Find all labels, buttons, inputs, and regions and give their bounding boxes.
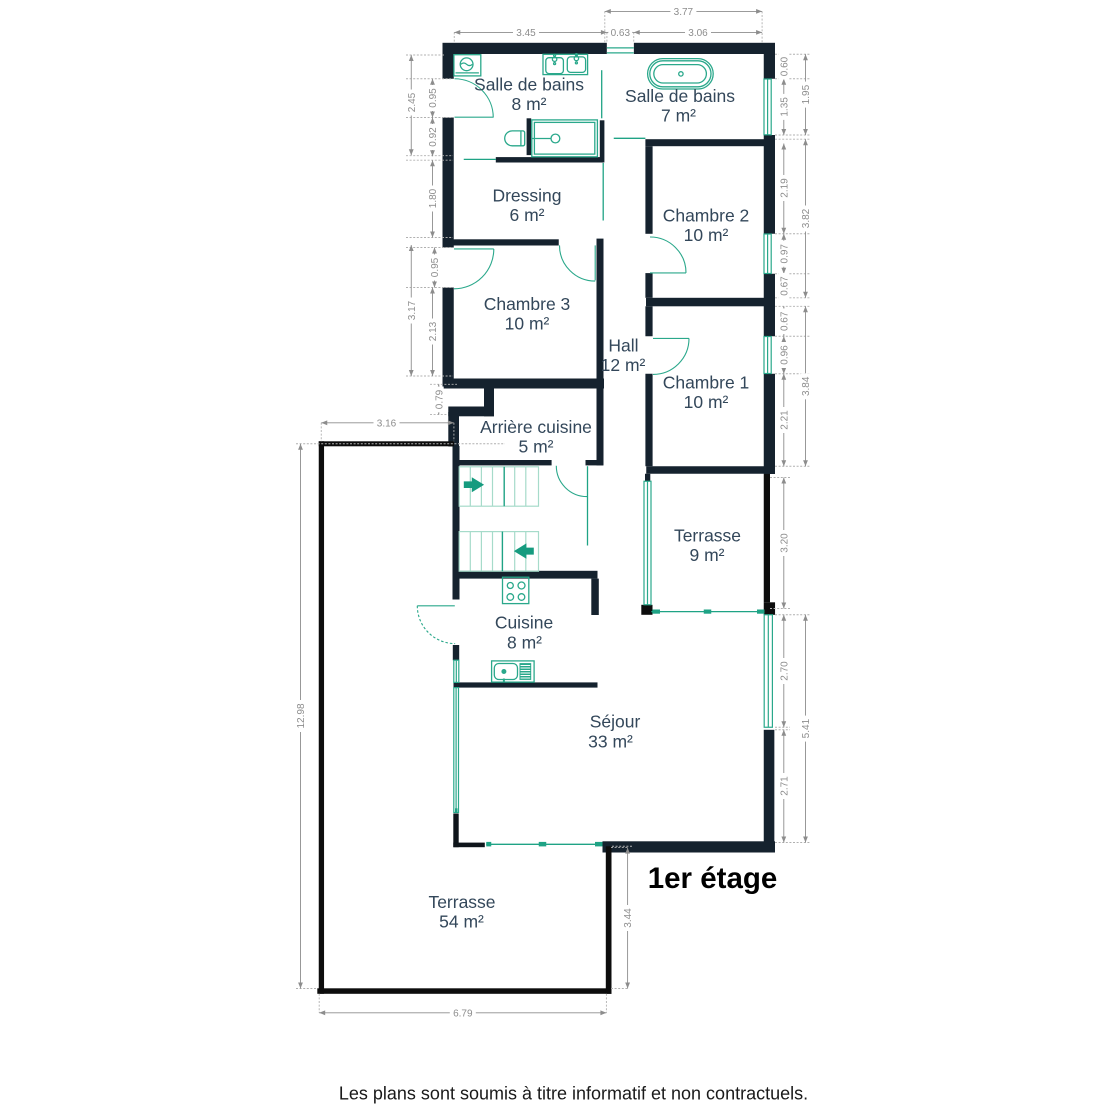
svg-text:2.45: 2.45: [407, 92, 418, 112]
svg-text:3.17: 3.17: [407, 300, 418, 320]
svg-text:0.92: 0.92: [428, 127, 439, 147]
svg-text:10 m²: 10 m²: [505, 314, 550, 334]
svg-text:0.60: 0.60: [779, 56, 790, 76]
svg-text:3.06: 3.06: [688, 28, 708, 39]
svg-text:8 m²: 8 m²: [507, 633, 542, 653]
svg-text:Salle de bains: Salle de bains: [625, 86, 735, 106]
svg-text:3.20: 3.20: [779, 533, 790, 553]
svg-text:33 m²: 33 m²: [588, 732, 633, 752]
svg-text:1.95: 1.95: [801, 84, 812, 104]
svg-text:5.41: 5.41: [801, 718, 812, 738]
svg-text:Cuisine: Cuisine: [495, 613, 553, 633]
svg-text:Arrière cuisine: Arrière cuisine: [480, 417, 592, 437]
svg-text:Terrasse: Terrasse: [428, 892, 495, 912]
svg-text:3.77: 3.77: [674, 7, 694, 18]
svg-text:1er étage: 1er étage: [648, 862, 778, 895]
svg-text:1.35: 1.35: [779, 97, 790, 117]
svg-text:Chambre 1: Chambre 1: [663, 373, 750, 393]
svg-text:0.96: 0.96: [779, 345, 790, 365]
svg-text:2.70: 2.70: [779, 661, 790, 681]
svg-text:Terrasse: Terrasse: [674, 526, 741, 546]
svg-text:3.44: 3.44: [623, 908, 634, 928]
svg-text:0.95: 0.95: [428, 88, 439, 108]
svg-text:2.21: 2.21: [779, 410, 790, 430]
svg-text:0.67: 0.67: [779, 311, 790, 331]
svg-text:3.84: 3.84: [801, 376, 812, 396]
svg-text:Salle de bains: Salle de bains: [474, 75, 584, 95]
svg-text:3.82: 3.82: [801, 208, 812, 228]
svg-text:0.63: 0.63: [611, 28, 631, 39]
svg-text:Hall: Hall: [608, 336, 638, 356]
svg-text:2.13: 2.13: [428, 321, 439, 341]
svg-text:2.71: 2.71: [779, 776, 790, 796]
svg-text:Chambre 3: Chambre 3: [484, 294, 571, 314]
svg-text:0.79: 0.79: [434, 389, 445, 409]
svg-text:5 m²: 5 m²: [519, 437, 554, 457]
svg-text:8 m²: 8 m²: [512, 94, 547, 114]
svg-text:3.45: 3.45: [516, 28, 536, 39]
svg-text:6 m²: 6 m²: [510, 205, 545, 225]
svg-text:Chambre 2: Chambre 2: [663, 206, 750, 226]
svg-text:Dressing: Dressing: [492, 186, 561, 206]
svg-text:12 m²: 12 m²: [601, 355, 646, 375]
svg-text:9 m²: 9 m²: [690, 545, 725, 565]
svg-text:Les plans sont soumis à titre: Les plans sont soumis à titre informatif…: [339, 1084, 808, 1104]
svg-text:54 m²: 54 m²: [439, 912, 484, 932]
svg-text:3.16: 3.16: [377, 418, 397, 429]
svg-text:2.19: 2.19: [779, 178, 790, 198]
svg-text:0.67: 0.67: [779, 276, 790, 296]
svg-text:10 m²: 10 m²: [684, 225, 729, 245]
svg-text:0.95: 0.95: [430, 257, 441, 277]
svg-text:6.79: 6.79: [453, 1008, 473, 1019]
svg-text:10 m²: 10 m²: [684, 392, 729, 412]
svg-text:0.97: 0.97: [779, 244, 790, 264]
svg-text:1.80: 1.80: [428, 188, 439, 208]
svg-text:Séjour: Séjour: [590, 712, 641, 732]
svg-text:7 m²: 7 m²: [661, 106, 696, 126]
svg-text:12.98: 12.98: [296, 703, 307, 728]
